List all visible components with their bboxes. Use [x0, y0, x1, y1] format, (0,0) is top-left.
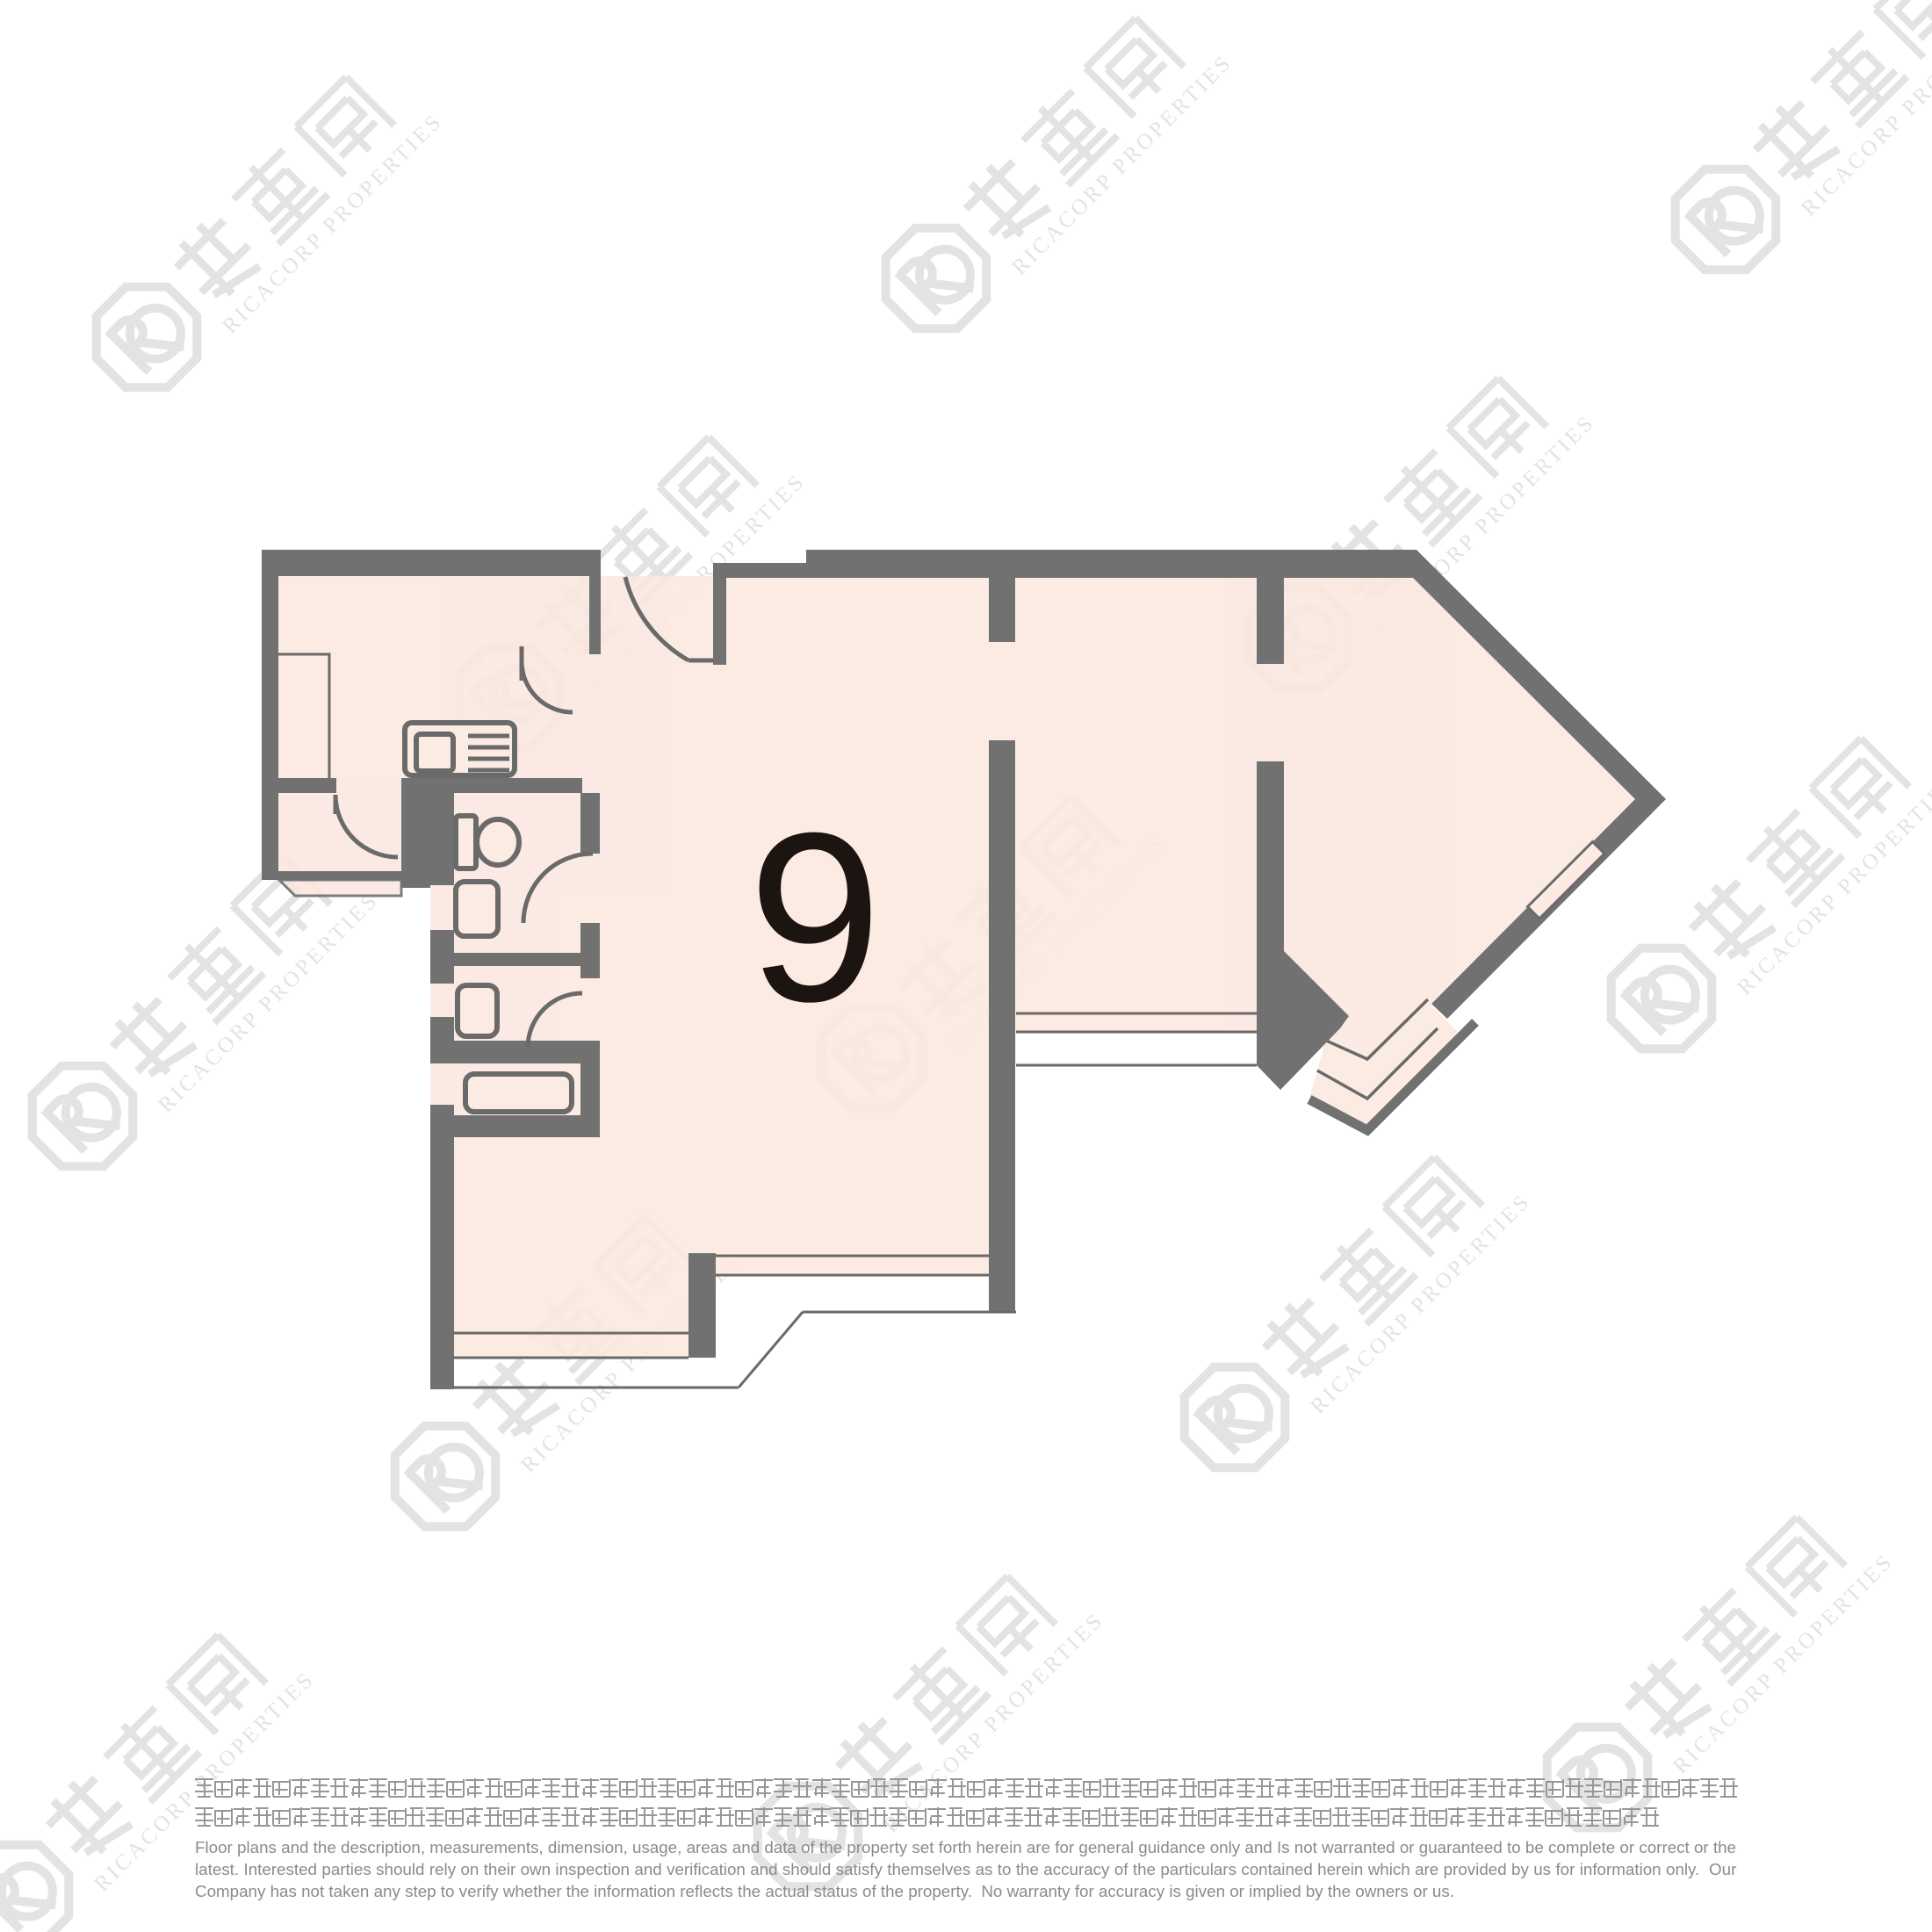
- svg-text:9: 9: [748, 783, 882, 1052]
